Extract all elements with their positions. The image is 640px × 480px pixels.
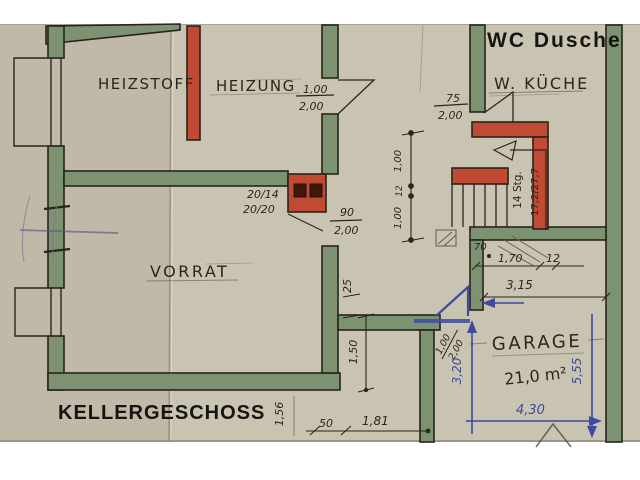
room-label-wc-dusche: WC Dusche <box>487 29 622 52</box>
dim-heizung-door-w: 1,00 <box>303 83 328 96</box>
chimney-flue1-label: 20/14 <box>247 188 279 201</box>
dim-555-label: 5,55 <box>570 358 584 385</box>
plan-title: KELLERGESCHOSS <box>58 402 265 424</box>
wall-vorrat-right-lower <box>322 246 338 373</box>
chimney-flue2-label: 20/20 <box>243 203 275 216</box>
chimney-flue-hole1 <box>294 184 306 197</box>
wall-vorrat-top <box>64 171 288 186</box>
dim-430-label: 4,30 <box>516 403 545 418</box>
wall-right-exterior <box>606 25 622 442</box>
wall-kueche-left-stub <box>470 25 485 112</box>
room-label-heizstoff: HEIZSTOFF <box>98 75 195 93</box>
wall-left-mid <box>48 146 64 288</box>
stair-steps-label: 14 Stg. <box>512 171 524 208</box>
wall-vorrat-bottom <box>48 373 340 390</box>
dim-chain-mid: 12 <box>395 185 405 197</box>
dim-hall-70: 70 <box>474 242 487 253</box>
dim-kueche-door-w: 75 <box>446 92 460 105</box>
dim-chain-bottom: 1,00 <box>393 207 404 229</box>
room-label-garage: GARAGE <box>491 331 582 355</box>
dim-320-label: 3,20 <box>450 357 464 384</box>
wall-vorrat-right-upper <box>322 114 338 174</box>
dim-kueche-door-h: 2,00 <box>438 109 463 122</box>
chimney-flue-hole2 <box>310 184 322 197</box>
wall-garage-left <box>420 330 434 442</box>
dim-hall-170: 1,70 <box>498 252 523 265</box>
floorplan-photo: 14 Stg. 17,2/27,7 1,00 2,00 75 2,00 20/1… <box>0 0 640 480</box>
stair-riserun-label: 17,2/27,7 <box>530 168 541 216</box>
dim-50-label: 50 <box>319 417 333 430</box>
dim-181-label: 1,81 <box>362 414 389 428</box>
dim-vorrat-door-h: 2,00 <box>334 224 359 237</box>
stair-top-bar <box>452 168 508 184</box>
dim-chain-top: 1,00 <box>393 150 404 172</box>
room-label-vorrat: VORRAT <box>150 262 229 281</box>
dim-315-label: 3,15 <box>506 278 533 292</box>
wall-kueche-horizontal <box>472 122 548 137</box>
dim-hall-12: 12 <box>546 252 560 265</box>
dim-156-label: 1,56 <box>273 402 286 427</box>
chimney <box>288 174 326 212</box>
dim-vorrat-door-w: 90 <box>340 206 354 219</box>
wall-heizung-right-stub <box>322 25 338 78</box>
wall-left-upper <box>48 26 64 58</box>
room-label-wkueche-group: W. KÜCHE <box>489 74 589 96</box>
room-label-heizung-group: HEIZUNG <box>210 77 302 95</box>
dim-25-label: 25 <box>341 279 354 293</box>
dim-heizung-door-h: 2,00 <box>299 100 324 113</box>
dim-150-label: 1,50 <box>347 340 360 365</box>
room-label-wkueche: W. KÜCHE <box>494 74 589 93</box>
